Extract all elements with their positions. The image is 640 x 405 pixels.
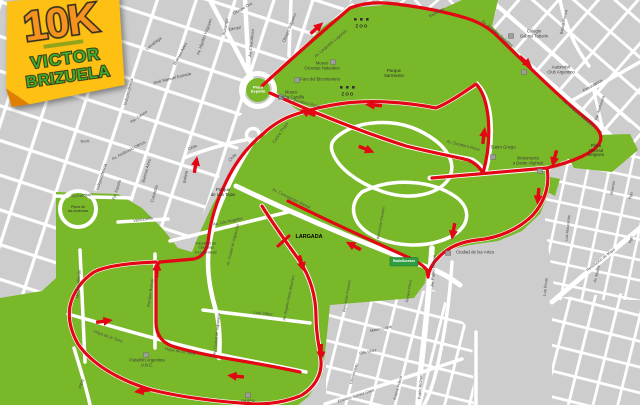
event-logo: 10K VICTOR BRIZUELA (0, 0, 137, 113)
plaza-americas (60, 191, 96, 227)
race-map-canvas: Obispo TrejoIndependenciaPje. CalusoLarr… (0, 0, 640, 405)
radio-sucesos-sign (390, 258, 418, 267)
